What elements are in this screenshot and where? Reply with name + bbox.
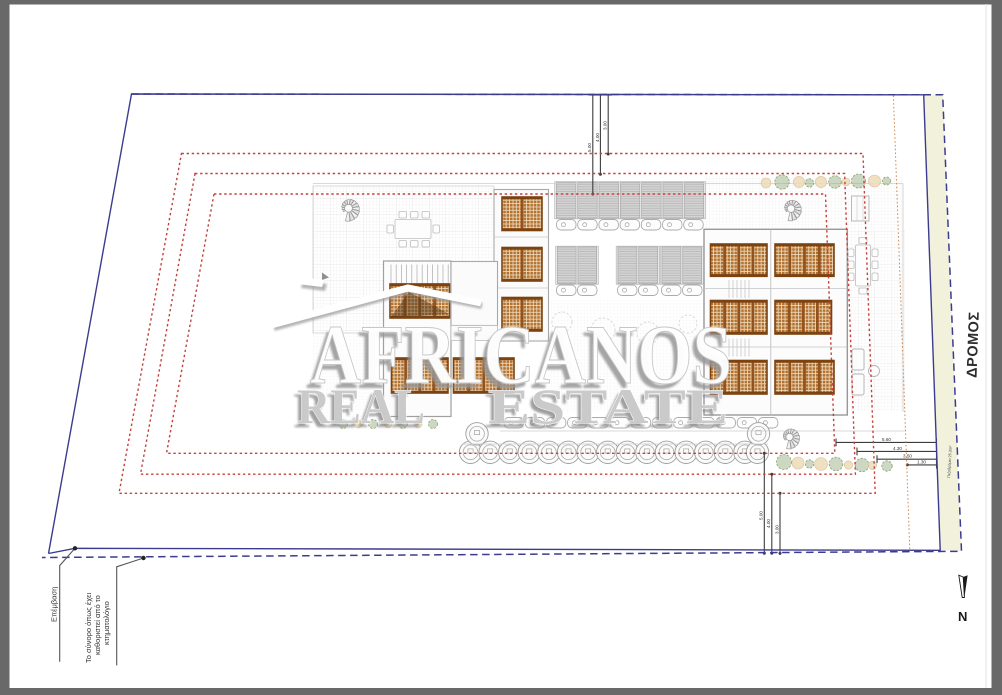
svg-text:Το σύνορο όπως έχει: Το σύνορο όπως έχει bbox=[84, 593, 93, 663]
svg-text:5.00: 5.00 bbox=[759, 511, 764, 520]
svg-text:Επέμβαση: Επέμβαση bbox=[50, 587, 59, 622]
svg-text:5.60: 5.60 bbox=[882, 437, 891, 442]
svg-text:4.00: 4.00 bbox=[766, 519, 771, 528]
svg-text:4.00: 4.00 bbox=[595, 133, 600, 142]
svg-text:3.00: 3.00 bbox=[774, 525, 779, 534]
svg-text:3.50: 3.50 bbox=[903, 454, 912, 459]
svg-text:ΔΡΟΜΟΣ: ΔΡΟΜΟΣ bbox=[965, 311, 983, 378]
svg-text:κτηματολόγιο: κτηματολόγιο bbox=[102, 601, 111, 645]
svg-text:5.00: 5.00 bbox=[587, 143, 592, 152]
svg-text:3.00: 3.00 bbox=[603, 121, 608, 130]
svg-text:καθοριστεί από το: καθοριστεί από το bbox=[93, 595, 102, 655]
svg-text:1.30: 1.30 bbox=[917, 459, 926, 464]
svg-text:4.30: 4.30 bbox=[893, 446, 902, 451]
svg-text:N: N bbox=[958, 609, 967, 624]
svg-text:REAL: REAL bbox=[297, 378, 425, 434]
svg-text:ESTATE: ESTATE bbox=[488, 378, 728, 434]
